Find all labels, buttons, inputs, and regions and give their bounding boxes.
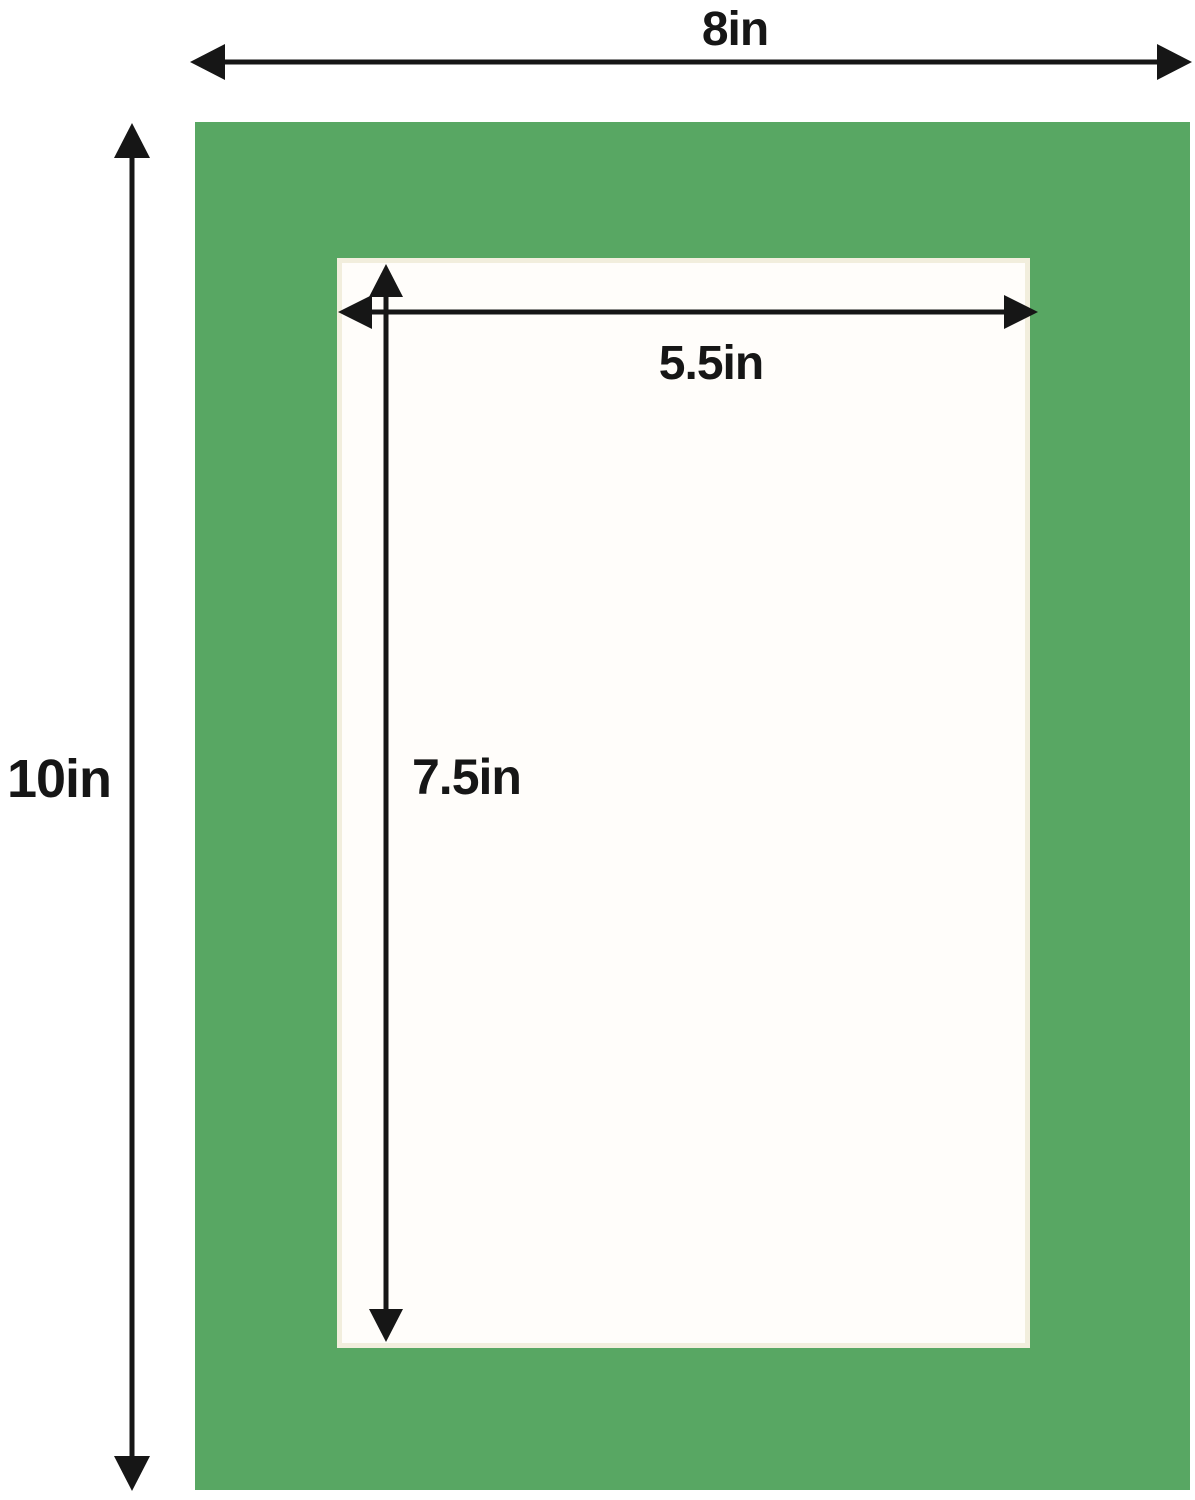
opening-width-arrow-icon (337, 280, 1039, 344)
arrowhead-up-icon (114, 123, 150, 158)
arrowhead-right-icon (1004, 295, 1038, 329)
opening-width-label: 5.5in (601, 340, 821, 388)
opening-height-label: 7.5in (412, 752, 521, 802)
arrowhead-right-icon (1157, 44, 1192, 80)
outer-width-label: 8in (650, 6, 820, 54)
arrowhead-down-icon (114, 1456, 150, 1491)
mat-dimension-diagram: 8in 10in 5.5in 7.5in (0, 0, 1195, 1500)
arrowhead-down-icon (369, 1309, 403, 1342)
arrowhead-up-icon (369, 264, 403, 297)
opening-height-arrow-icon (354, 263, 418, 1343)
outer-height-label: 10in (0, 752, 120, 806)
arrowhead-left-icon (190, 44, 225, 80)
